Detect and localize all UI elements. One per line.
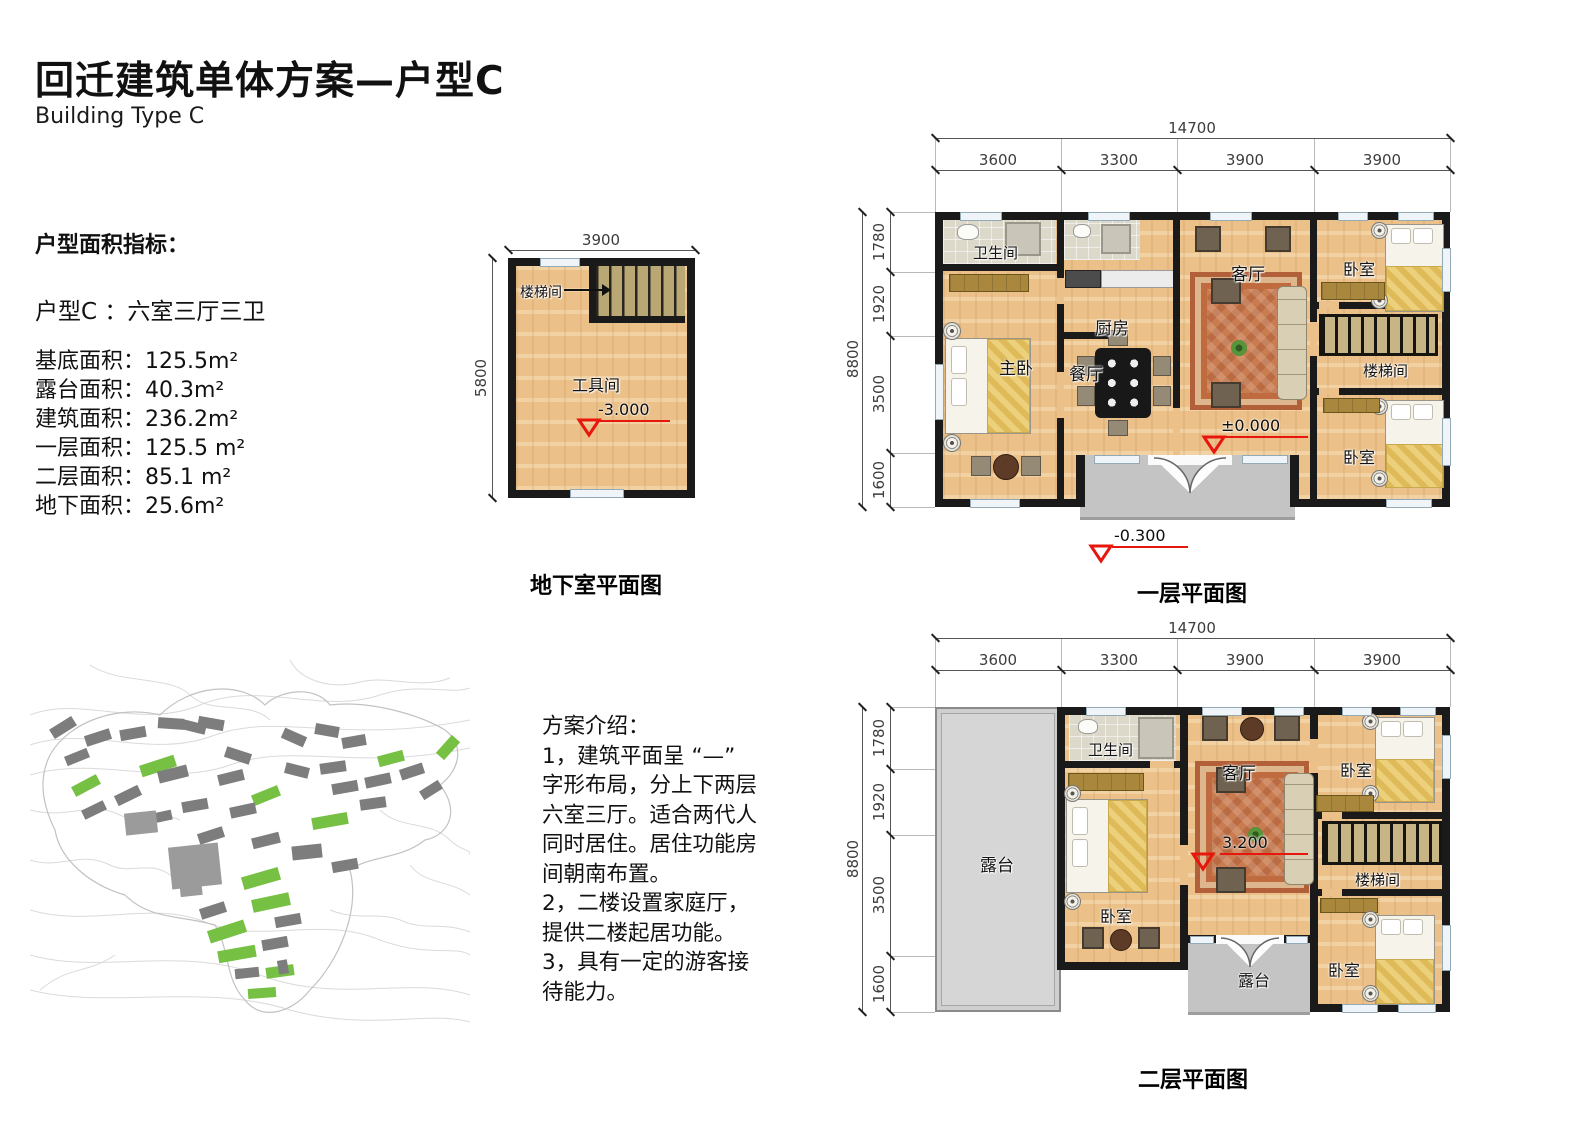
dim-label: 14700 (1147, 119, 1237, 137)
basement-floorplan: 楼梯间 工具间 -3.000 (508, 258, 695, 498)
extension-line (892, 769, 935, 770)
kitchen-counter (1101, 270, 1175, 288)
map-building (314, 723, 340, 738)
dim-label: 14700 (1147, 619, 1237, 637)
window (1342, 707, 1372, 716)
nightstand (1362, 911, 1379, 928)
pillow (951, 378, 967, 406)
window (935, 364, 944, 420)
chair (1077, 386, 1095, 406)
floor1-plan-group: 14700 3600 3300 3900 3900 8800 1780 1920… (850, 118, 1555, 613)
pillow (1381, 919, 1401, 935)
map-building (124, 810, 158, 835)
tea-table (993, 454, 1019, 480)
window (1342, 1004, 1378, 1013)
stair-arrow-head (602, 284, 611, 296)
door-opening (1322, 812, 1342, 819)
dim-label: 1600 (870, 949, 888, 1019)
intro-line: 六室三厅。适合两代人 (542, 801, 802, 831)
wardrobe (1321, 282, 1385, 300)
pillow (951, 346, 967, 374)
dimension-line (508, 250, 695, 251)
map-building (217, 769, 245, 786)
window (1398, 212, 1434, 221)
area-metric-item: 一层面积：125.5 m² (35, 434, 245, 463)
extension-line (892, 835, 935, 836)
blanket (1108, 800, 1147, 892)
floor1-caption: 一层平面图 (1137, 576, 1247, 608)
level-marker-text: -3.000 (596, 400, 670, 422)
dim-label: 8800 (844, 824, 862, 894)
window (1442, 248, 1451, 292)
intro-block: 方案介绍： 1，建筑平面呈 “—”字形布局，分上下两层六室三厅。适合两代人同时居… (542, 712, 802, 1007)
door-opening (1322, 889, 1342, 896)
intro-line: 提供二楼起居功能。 (542, 919, 802, 949)
map-building (251, 832, 281, 849)
floor2-plan-group: 14700 3600 3300 3900 3900 8800 1780 1920… (850, 615, 1555, 1115)
chair (1153, 386, 1171, 406)
extension-line (892, 1012, 935, 1013)
window (1094, 455, 1140, 464)
area-metrics-heading: 户型面积指标： (35, 227, 189, 259)
intro-line: 同时居住。居住功能房 (542, 830, 802, 860)
porch-wall (1076, 455, 1085, 507)
pillow (1391, 404, 1411, 420)
nightstand (1064, 785, 1081, 802)
map-building (197, 826, 225, 844)
blanket (1386, 266, 1443, 311)
level-marker-triangle (1201, 435, 1227, 455)
basement-plan-group: 3900 5800 楼梯间 工具间 -3.000 地下室平面图 (430, 228, 730, 618)
extension-line (892, 272, 935, 273)
door-opening (1319, 302, 1339, 309)
dimension-line (935, 670, 1450, 671)
pillow (1403, 919, 1423, 935)
map-building (399, 763, 425, 781)
slide-page: 回迁建筑单体方案—户型C Building Type C 户型面积指标： 户型C… (0, 0, 1588, 1123)
map-building (179, 881, 202, 897)
floor2-caption: 二层平面图 (1138, 1062, 1248, 1094)
dimension-line (935, 638, 1450, 639)
dim-label: 1920 (870, 269, 888, 339)
door-opening (1173, 408, 1180, 456)
tea-table (1240, 717, 1264, 741)
pillow (1391, 228, 1411, 244)
dim-label: 1780 (870, 207, 888, 277)
pillow (1403, 721, 1423, 737)
interior-wall (589, 316, 685, 323)
area-metric-item: 二层面积：85.1 m² (35, 463, 245, 492)
room-label-living: 客厅 (1231, 260, 1265, 285)
page-subtitle: Building Type C (35, 104, 204, 129)
map-building-highlight (217, 945, 257, 963)
dimension-line (935, 138, 1450, 139)
map-building (114, 785, 142, 806)
map-building (64, 748, 90, 766)
extension-line (892, 336, 935, 337)
blanket (1376, 959, 1434, 1004)
window (1190, 936, 1214, 944)
plant (1231, 340, 1247, 356)
blanket (1376, 759, 1434, 802)
room-label-kitchen: 厨房 (1095, 314, 1129, 339)
window (1286, 936, 1308, 944)
map-building (84, 728, 112, 746)
map-building-highlight (251, 892, 291, 913)
extension-line (1314, 138, 1315, 212)
interior-wall (1180, 707, 1188, 970)
dim-label: 1600 (870, 445, 888, 515)
window (1442, 925, 1451, 971)
map-building-highlight (241, 867, 281, 890)
nightstand (943, 434, 961, 452)
dimension-line (935, 170, 1450, 171)
map-building (419, 780, 443, 800)
dim-label: 1920 (870, 767, 888, 837)
entry-door-icon (1150, 456, 1230, 494)
dim-label: 1780 (870, 703, 888, 773)
intro-line: 3，具有一定的游客接 (542, 948, 802, 978)
window (1442, 418, 1451, 466)
door-opening (1310, 739, 1318, 773)
intro-line: 2，二楼设置家庭厅， (542, 889, 802, 919)
window (1088, 212, 1130, 221)
map-building (229, 802, 257, 818)
window (1274, 707, 1304, 716)
armchair (1138, 927, 1160, 949)
door-opening (1319, 388, 1339, 395)
nightstand (1371, 470, 1388, 487)
dim-label: 3500 (870, 359, 888, 429)
window (1086, 707, 1126, 716)
map-building-highlight (71, 774, 101, 797)
chair (971, 456, 991, 476)
map-building-highlight (207, 919, 247, 943)
extension-line (1177, 138, 1178, 212)
armchair (1202, 715, 1228, 741)
dim-label: 3500 (870, 860, 888, 930)
dim-label: 3300 (1074, 651, 1164, 669)
room-label-toolroom: 工具间 (572, 372, 620, 396)
area-metric-item: 建筑面积：236.2m² (35, 405, 245, 434)
pillow (1413, 404, 1433, 420)
room-label-bedroom: 卧室 (1343, 256, 1375, 280)
intro-lines: 1，建筑平面呈 “—”字形布局，分上下两层六室三厅。适合两代人同时居住。居住功能… (542, 742, 802, 1008)
map-building (331, 780, 359, 795)
interior-wall (1057, 220, 1064, 499)
intro-heading: 方案介绍： (542, 712, 802, 742)
map-building (284, 762, 310, 778)
map-building (158, 717, 185, 730)
window (1400, 707, 1436, 716)
room-label-bedroom: 卧室 (1340, 757, 1372, 781)
room-label-bedroom: 卧室 (1343, 444, 1375, 468)
extension-line (892, 212, 935, 213)
wardrobe (949, 274, 1029, 292)
door-opening (1057, 372, 1064, 418)
map-building (341, 734, 367, 749)
map-building (81, 800, 107, 820)
level-marker-text: -0.300 (1112, 526, 1188, 548)
dim-label: 3900 (1200, 151, 1290, 169)
interior-wall (589, 266, 596, 322)
dining-table (1095, 348, 1151, 418)
dim-label: 3900 (556, 231, 646, 249)
area-metrics-list: 基底面积：125.5m²露台面积：40.3m²建筑面积：236.2m²一层面积：… (35, 347, 245, 521)
map-building-highlight (311, 812, 349, 830)
window (1398, 1004, 1436, 1013)
armchair (1265, 226, 1291, 252)
room-label-bedroom: 卧室 (1328, 957, 1360, 981)
level-marker-triangle (1088, 544, 1114, 564)
dimension-line (492, 258, 493, 498)
map-building-highlight (248, 987, 277, 999)
window (570, 489, 624, 498)
toilet (957, 224, 979, 240)
armchair (1195, 226, 1221, 252)
wardrobe (1323, 398, 1380, 413)
armchair (1211, 382, 1241, 408)
door-opening (1150, 761, 1174, 768)
level-marker-triangle (576, 418, 602, 438)
extension-line (892, 707, 935, 708)
map-building (359, 796, 386, 811)
map-building (281, 728, 307, 748)
dimension-line (890, 212, 891, 507)
pillow (1381, 721, 1401, 737)
map-building (364, 772, 392, 788)
extension-line (892, 956, 935, 957)
chair (1153, 356, 1171, 376)
map-building-highlight (377, 750, 405, 767)
extension-line (1450, 138, 1451, 212)
chair (1108, 420, 1128, 436)
door-opening (1310, 322, 1317, 356)
dim-label: 3900 (1337, 151, 1427, 169)
map-building (119, 726, 147, 741)
nightstand (1362, 985, 1379, 1002)
area-metric-item: 露台面积：40.3m² (35, 376, 245, 405)
stairs (1319, 314, 1438, 356)
window (1442, 735, 1451, 779)
interior-wall (943, 264, 1064, 271)
map-building-highlight (436, 735, 460, 760)
dim-label: 3900 (1200, 651, 1290, 669)
dimension-line (862, 212, 863, 507)
unit-type-line: 户型C ：六室三厅三卫 (35, 292, 265, 326)
chair (1021, 456, 1041, 476)
sofa (1284, 773, 1314, 885)
pillow (1072, 807, 1088, 835)
map-building-highlight (251, 785, 281, 806)
stairs (1322, 821, 1442, 865)
wardrobe (1316, 795, 1374, 812)
level-marker-text: ±0.000 (1219, 416, 1308, 438)
stair-arrow (564, 289, 604, 291)
window (1338, 212, 1368, 221)
window (1386, 499, 1432, 508)
dimension-line (890, 707, 891, 1012)
site-map (30, 660, 470, 1025)
blanket (1386, 444, 1443, 488)
room-label-master: 主卧 (999, 354, 1033, 379)
terrace-door-icon (1218, 936, 1282, 968)
window (970, 499, 1020, 508)
room-label-terrace-small: 露台 (1238, 967, 1270, 991)
door-opening (1057, 278, 1064, 304)
intro-line: 待能力。 (542, 978, 802, 1008)
window (1202, 707, 1242, 716)
porch-wall (1290, 455, 1299, 507)
stove (1065, 270, 1101, 288)
map-building (274, 913, 302, 928)
nightstand (943, 322, 961, 340)
intro-line: 间朝南布置。 (542, 860, 802, 890)
window (960, 212, 1002, 221)
toilet (1078, 719, 1098, 734)
shower (1138, 717, 1174, 759)
basement-caption: 地下室平面图 (530, 568, 662, 600)
dim-label: 3300 (1074, 151, 1164, 169)
dim-label: 3600 (953, 151, 1043, 169)
map-building (291, 843, 322, 860)
tea-table (1110, 929, 1132, 951)
armchair (1082, 927, 1104, 949)
intro-line: 1，建筑平面呈 “—” (542, 742, 802, 772)
room-label-bathroom: 卫生间 (1088, 739, 1133, 760)
extension-line (935, 138, 936, 212)
map-building (199, 901, 227, 919)
dimension-line (862, 707, 863, 1012)
room-label-dining: 餐厅 (1069, 360, 1103, 385)
dim-label: 5800 (472, 343, 490, 413)
map-building (331, 858, 359, 873)
armchair (1274, 715, 1300, 741)
extension-line (1061, 138, 1062, 212)
window (1242, 455, 1288, 464)
map-building (319, 760, 346, 775)
area-metric-item: 基底面积：125.5m² (35, 347, 245, 376)
exterior-wall (1057, 707, 1065, 970)
window (540, 258, 580, 267)
window (1210, 212, 1252, 221)
room-label-stairwell: 楼梯间 (1363, 360, 1408, 381)
armchair (1216, 867, 1246, 893)
interior-wall (1310, 220, 1317, 499)
room-label-bedroom: 卧室 (1100, 903, 1132, 927)
room-label-stairwell: 楼梯间 (520, 282, 562, 302)
exterior-wall (1057, 962, 1188, 970)
room-label-living: 客厅 (1222, 759, 1256, 784)
map-building (261, 936, 289, 951)
shower (1101, 224, 1131, 254)
area-metric-item: 地下面积：25.6m² (35, 492, 245, 521)
pillow (1413, 228, 1433, 244)
room-label-terrace: 露台 (980, 851, 1014, 876)
nightstand (1371, 222, 1388, 239)
dim-label: 8800 (844, 324, 862, 394)
map-building (181, 798, 209, 813)
dim-label: 3900 (1337, 651, 1427, 669)
sofa (1277, 286, 1307, 400)
pillow (1072, 839, 1088, 867)
door-opening (1180, 845, 1188, 885)
room-label-stairwell: 楼梯间 (1355, 869, 1400, 890)
nightstand (1064, 893, 1081, 910)
dim-label: 3600 (953, 651, 1043, 669)
room-label-bathroom: 卫生间 (973, 242, 1018, 263)
toilet (1073, 224, 1091, 238)
map-building (49, 716, 77, 739)
level-marker-text: 3.200 (1220, 833, 1308, 855)
extension-line (892, 453, 935, 454)
intro-line: 字形布局，分上下两层 (542, 771, 802, 801)
extension-line (892, 507, 935, 508)
page-title: 回迁建筑单体方案—户型C (35, 50, 505, 106)
level-marker-triangle (1190, 852, 1216, 872)
